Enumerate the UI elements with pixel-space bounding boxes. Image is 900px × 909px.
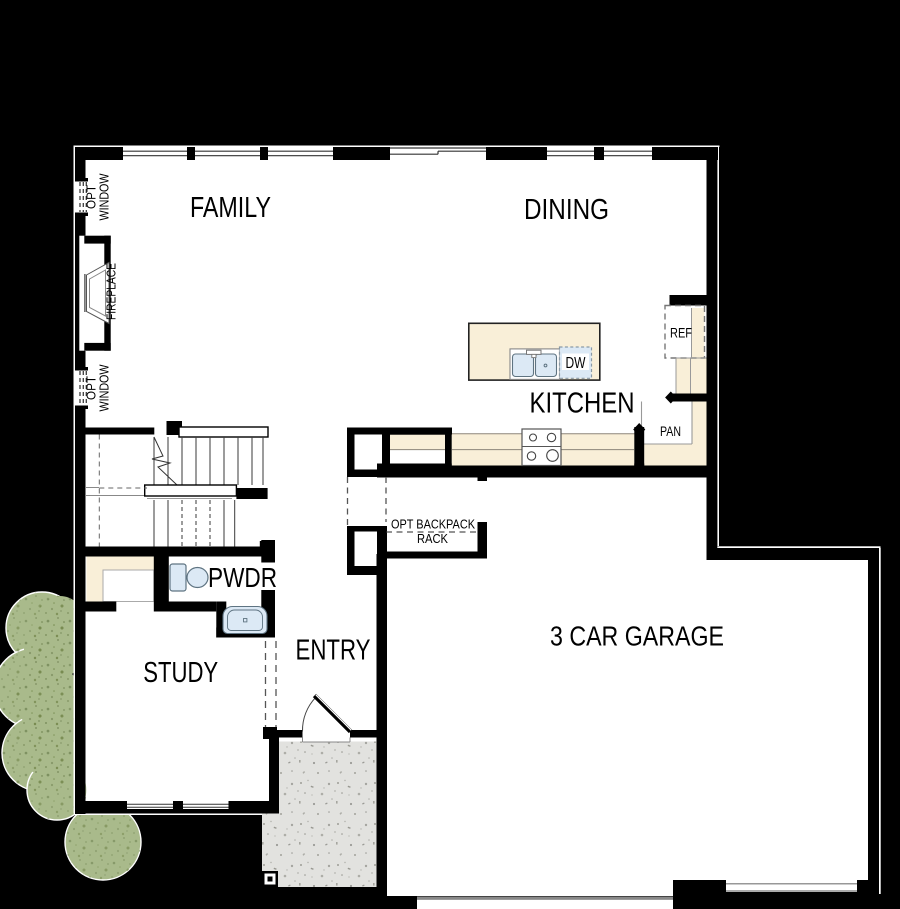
svg-text:OPT BACKPACK: OPT BACKPACK: [391, 517, 475, 532]
svg-text:WINDOW: WINDOW: [98, 173, 112, 220]
svg-text:3 CAR GARAGE: 3 CAR GARAGE: [550, 621, 724, 652]
svg-text:OPT: OPT: [85, 185, 99, 209]
svg-text:REF: REF: [670, 325, 692, 341]
svg-text:FAMILY: FAMILY: [190, 192, 271, 224]
svg-text:STUDY: STUDY: [143, 657, 218, 689]
svg-text:OPT: OPT: [85, 376, 99, 400]
svg-text:KITCHEN: KITCHEN: [530, 388, 635, 420]
svg-text:DINING: DINING: [524, 194, 609, 226]
svg-text:ENTRY: ENTRY: [296, 635, 371, 667]
svg-text:RACK: RACK: [417, 531, 448, 546]
svg-text:PWDR: PWDR: [208, 562, 277, 593]
svg-text:FIREPLACE: FIREPLACE: [104, 263, 119, 320]
svg-text:WINDOW: WINDOW: [98, 364, 112, 411]
svg-text:PAN: PAN: [660, 423, 681, 439]
svg-text:DW: DW: [566, 355, 587, 372]
